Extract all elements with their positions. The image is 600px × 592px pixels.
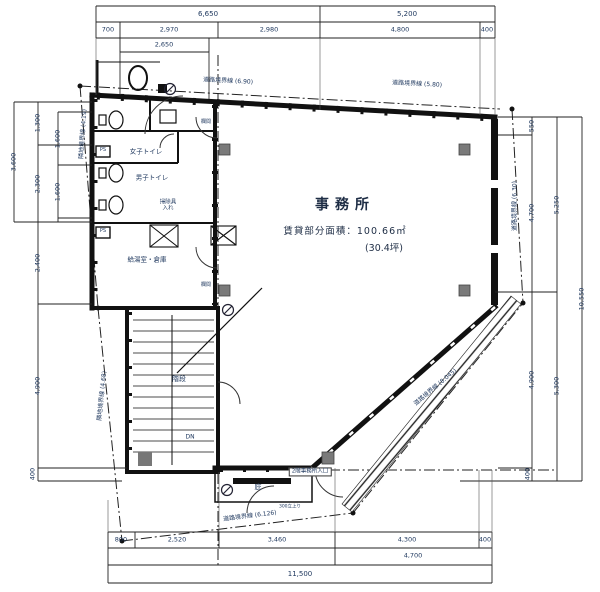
dim-bottom-4300: 4,300 xyxy=(398,536,417,543)
dim-left-1600-upper: 1,600 xyxy=(54,130,61,149)
dim-right-5300: 5,300 xyxy=(553,377,560,396)
room-stairs: 階段 xyxy=(172,375,186,383)
room-cleaning-closet: 掃除具 入れ xyxy=(160,200,177,213)
room-kitchen-storage: 給湯室・倉庫 xyxy=(128,256,167,263)
ps-upper: PS xyxy=(100,148,106,154)
dim-bottom-400: 400 xyxy=(479,536,491,543)
dim-right-4900: 4,900 xyxy=(528,371,535,390)
room-mens-toilet: 男子トイレ xyxy=(136,174,169,181)
boundary-road-diagonal: 道路境界線 (8.045) xyxy=(413,368,459,408)
dim-left-2400: 2,400 xyxy=(34,254,41,273)
dim-top-400: 400 xyxy=(481,26,493,33)
dim-left-1300: 1,300 xyxy=(34,114,41,133)
dim-left-400: 400 xyxy=(29,468,36,480)
note-upstand: 300立上り xyxy=(279,504,301,509)
boundary-road-right: 道路境界線 (6.30) xyxy=(513,181,520,231)
dim-top-2650: 2,650 xyxy=(155,41,174,48)
boundary-road-bottom: 道路境界線 (6.126) xyxy=(223,510,277,523)
entrance-label: 2階事務所入口 xyxy=(289,467,332,476)
dim-top-700: 700 xyxy=(102,26,114,33)
boundary-road-top-left: 道路境界線 (6.90) xyxy=(203,77,253,86)
dim-top-total-right: 5,200 xyxy=(397,10,417,18)
transom-lower: 欄間 xyxy=(201,283,211,289)
dim-bottom-4700: 4,700 xyxy=(404,552,423,559)
dim-right-5250: 5,250 xyxy=(553,196,560,215)
dim-right-400: 400 xyxy=(524,468,531,480)
dim-bottom-3460: 3,460 xyxy=(268,536,287,543)
dim-right-4700: 4,700 xyxy=(528,204,535,223)
dim-top-total-left: 6,650 xyxy=(198,10,218,18)
dim-bottom-2520: 2,520 xyxy=(168,536,187,543)
transom-upper: 欄間 xyxy=(201,120,211,126)
floor-plan-page: 事務所 賃貸部分面積：100.66㎡ (30.4坪) 6,6505,200700… xyxy=(0,0,600,592)
labels-layer: 6,6505,2007002,9702,9804,8004002,6508002… xyxy=(0,0,600,592)
boundary-adjacent-left-upper: 隣地境界線 (4.19) xyxy=(79,109,89,159)
canopy: 庇 xyxy=(255,483,262,491)
dim-left-4900: 4,900 xyxy=(34,377,41,396)
dim-left-3600: 3,600 xyxy=(10,153,17,172)
dim-top-4800: 4,800 xyxy=(391,26,410,33)
dim-top-2980: 2,980 xyxy=(260,26,279,33)
dim-top-2970: 2,970 xyxy=(160,26,179,33)
room-womens-toilet: 女子トイレ xyxy=(130,148,163,155)
dim-bottom-800: 800 xyxy=(115,536,127,543)
dim-right-10550: 10,550 xyxy=(578,288,585,311)
dim-left-1600-lower: 1,600 xyxy=(54,183,61,202)
boundary-adjacent-left-lower: 隣地境界線 (4.68) xyxy=(97,371,109,421)
boundary-road-top-right: 道路境界線 (5.80) xyxy=(392,80,442,89)
dim-left-2300: 2,300 xyxy=(34,175,41,194)
dim-right-550: 550 xyxy=(528,120,535,132)
dim-bottom-11500: 11,500 xyxy=(288,570,313,578)
ps-lower: PS xyxy=(100,229,106,235)
stairs-dn: DN xyxy=(185,435,194,442)
